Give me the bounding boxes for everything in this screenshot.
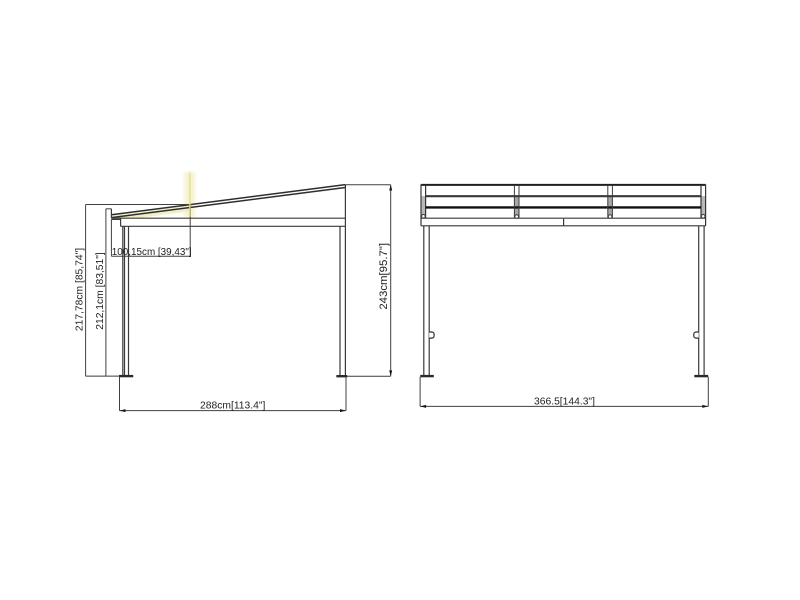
svg-text:288cm[113.4"]: 288cm[113.4"] [200, 400, 265, 411]
svg-text:100,15cm [39,43"]: 100,15cm [39,43"] [112, 247, 192, 258]
svg-text:217,78cm [85,74"]: 217,78cm [85,74"] [74, 248, 85, 331]
svg-text:212,1cm [83,51"]: 212,1cm [83,51"] [95, 252, 106, 330]
svg-text:366.5[144.3"]: 366.5[144.3"] [534, 396, 595, 407]
svg-text:243cm[95.7"]: 243cm[95.7"] [378, 243, 390, 310]
